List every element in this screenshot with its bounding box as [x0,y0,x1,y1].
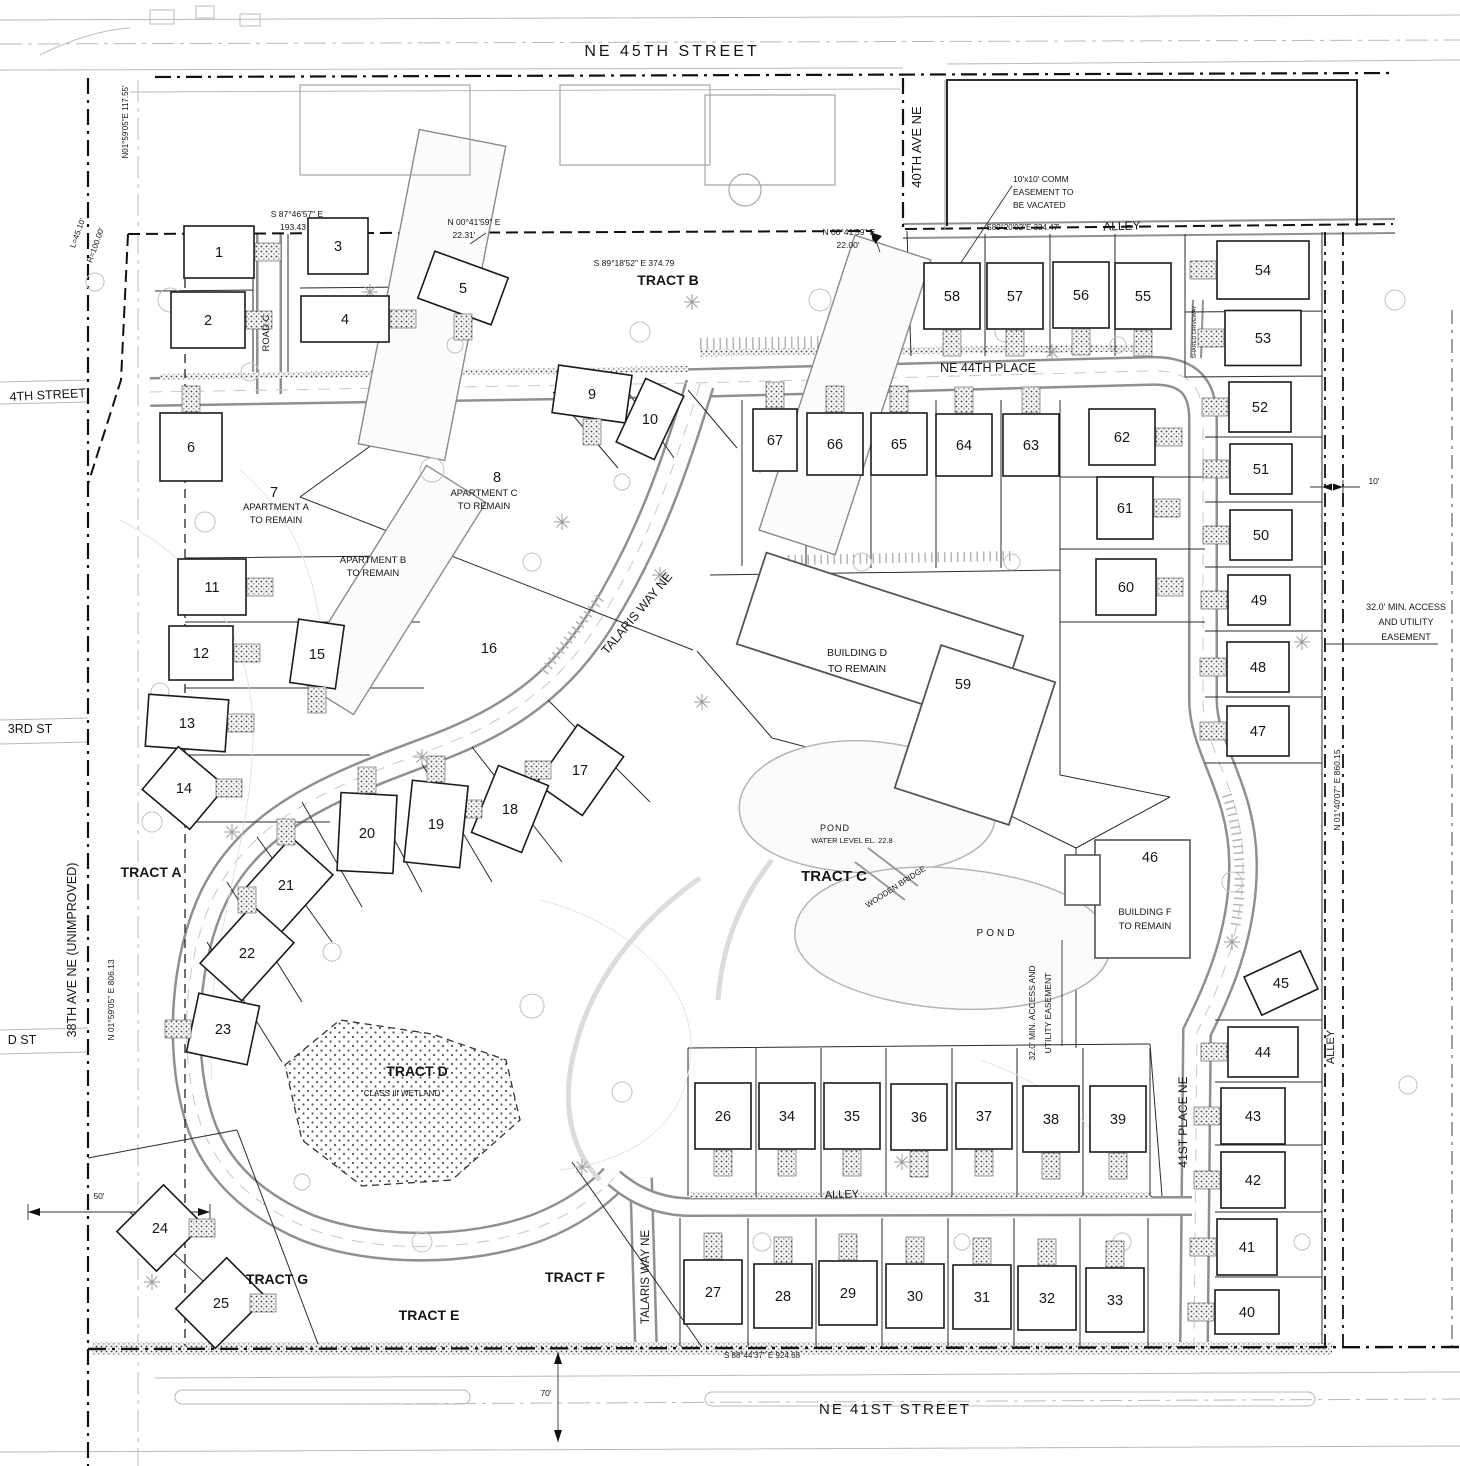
lot-12-driveway [234,644,260,662]
lot-12-number: 12 [193,646,209,662]
lot-40-driveway [1188,1303,1214,1321]
lot-26: 26 [695,1083,751,1176]
lot-61-number: 61 [1117,501,1133,517]
lot-35-number: 35 [844,1109,860,1125]
lot-13: 13 [145,694,254,751]
existing-pool [729,174,761,206]
lot-4-number: 4 [341,312,349,328]
lot-18-number: 18 [502,802,518,818]
lot-35-driveway [843,1150,861,1176]
lot-37: 37 [956,1083,1012,1176]
lot-39-number: 39 [1110,1112,1126,1128]
street-label: ALLEY [1325,1029,1337,1064]
lot-44: 44 [1201,1027,1298,1077]
lot-25-driveway [250,1294,276,1312]
lot-49-number: 49 [1251,593,1267,609]
lot-63-number: 63 [1023,438,1039,454]
lot-51-number: 51 [1253,462,1269,478]
lot-2-number: 2 [204,313,212,329]
street-label: D ST [8,1033,37,1047]
lot-60-driveway [1157,578,1183,596]
lot-30-number: 30 [907,1289,923,1305]
lot-9-number: 9 [588,387,596,403]
street-label: TALARIS WAY NE [640,1230,652,1324]
street-label: 40TH AVE NE [909,106,924,188]
median-island [175,1390,470,1404]
existing-block-border [947,80,1357,226]
lot-55-number: 55 [1135,289,1151,305]
street-label: 3RD ST [8,722,53,736]
lot-59: 59 [955,677,971,693]
lot-34: 34 [759,1083,815,1176]
tract-label: TRACT D [386,1063,447,1079]
lot-19-number: 19 [428,817,444,833]
lot-64-driveway [955,387,973,413]
lot-29: 29 [819,1234,877,1325]
dimension-label: AND UTILITY [1378,617,1433,627]
lot-11: 11 [178,559,273,615]
lot-5-driveway [454,314,472,340]
dimension-label: 10'x10' COMM [1013,174,1069,184]
lot-26-number: 26 [715,1109,731,1125]
dimension-label: 50' [93,1191,104,1201]
lot-22-driveway [238,887,256,913]
dimension-label: N01°59'05"E 117.55' [121,85,130,158]
lot-8-number: 8 [493,470,501,486]
lot-13-number: 13 [179,716,195,732]
lot-27-driveway [704,1233,722,1259]
street-label: ALLEY [825,1188,860,1201]
corner-curb-marks [40,6,260,55]
street-label: NE 44TH PLACE [940,361,1036,375]
lot-38-number: 38 [1043,1112,1059,1128]
building-label: TO REMAIN [458,501,511,512]
building-label: TO REMAIN [347,568,400,579]
lot-38: 38 [1023,1086,1079,1179]
dimension-label: UTILITY EASEMENT [1043,973,1053,1054]
lot-53-driveway [1198,329,1224,347]
lot-6-number: 6 [187,440,195,456]
lot-14-number: 14 [176,781,192,797]
lot-41-number: 41 [1239,1240,1255,1256]
lot-60: 60 [1096,559,1183,615]
dimension-label: 32.0' MIN. ACCESS [1366,602,1446,612]
site-plan-drawing: 1234567891011121314151617181920212223242… [0,0,1460,1466]
lot-23-driveway [165,1020,191,1038]
lot-66-number: 66 [827,437,843,453]
lot-46-number: 46 [1142,850,1158,866]
street-label: ROAD C [261,314,272,351]
lot-65-driveway [890,386,908,412]
lot-27: 27 [684,1233,742,1324]
lot-43-driveway [1194,1107,1220,1125]
lot-19-driveway [427,756,445,782]
building-label: APARTMENT A [243,502,310,513]
dimension-label: 10' [1368,476,1379,486]
tract-label: TRACT F [545,1269,605,1285]
tract-label: TRACT A [121,864,182,880]
lot-31-number: 31 [974,1290,990,1306]
tract-label: TRACT G [246,1271,308,1287]
lot-11-driveway [247,578,273,596]
lot-14: 14 [142,747,242,830]
lot-63-driveway [1022,387,1040,413]
lot-54-driveway [1190,261,1216,279]
dimension-label: SHARED DRIVEWAY [1192,305,1198,359]
lot-23-number: 23 [215,1022,231,1038]
lot-3-number: 3 [334,239,342,255]
lot-27-number: 27 [705,1285,721,1301]
lot-48-driveway [1200,658,1226,676]
lot-39-driveway [1109,1153,1127,1179]
lot-32: 32 [1018,1239,1076,1330]
building-label: TO REMAIN [828,663,886,675]
lot-41-driveway [1190,1238,1216,1256]
lot-52-number: 52 [1252,400,1268,416]
lot-67-number: 67 [767,433,783,449]
lot-62-driveway [1156,428,1182,446]
lot-36-driveway [910,1151,928,1177]
lot-5-number: 5 [459,281,467,297]
street-label: 38TH AVE NE (UNIMPROVED) [65,863,79,1038]
lot-24-number: 24 [152,1221,168,1237]
dimension-label: EASEMENT TO [1013,187,1074,197]
lot-8: 8 [493,470,501,486]
lot-16-number: 16 [481,641,497,657]
building-label: APARTMENT B [340,555,407,566]
lot-33-number: 33 [1107,1293,1123,1309]
lot-62: 62 [1089,409,1182,465]
lot-57-number: 57 [1007,289,1023,305]
lot-38-driveway [1042,1153,1060,1179]
lot-57-driveway [1006,330,1024,356]
building-label: TO REMAIN [250,515,303,526]
lot-33: 33 [1086,1241,1144,1332]
lot-21-number: 21 [278,878,294,894]
lot-36: 36 [891,1084,947,1177]
dimension-label: EASEMENT [1381,632,1431,642]
lot-25-number: 25 [213,1296,229,1312]
lot-48-number: 48 [1250,660,1266,676]
lot-64-number: 64 [956,438,972,454]
lot-52-driveway [1202,398,1228,416]
lot-42-driveway [1194,1171,1220,1189]
lot-34-number: 34 [779,1109,795,1125]
lot-60-number: 60 [1118,580,1134,596]
lot-9-driveway [583,419,601,445]
lot-61: 61 [1097,477,1180,539]
dimension-label: S89°20'02"E 334.47' [986,223,1060,232]
lot-34-driveway [778,1150,796,1176]
dimension-label: 22.00' [837,240,860,250]
lot-39: 39 [1090,1086,1146,1179]
lot-32-number: 32 [1039,1291,1055,1307]
lot-32-driveway [1038,1239,1056,1265]
lot-51-driveway [1203,460,1229,478]
building-label: APARTMENT C [450,488,517,499]
dimension-label: L=45.10' [68,217,87,249]
building-label: BUILDING F [1118,907,1172,918]
lot-53: 53 [1198,311,1301,366]
lot-28-driveway [774,1237,792,1263]
lot-56: 56 [1053,262,1109,355]
lot-65-number: 65 [891,437,907,453]
street-label: ALLEY [1103,218,1141,233]
lot-7-number: 7 [270,485,278,501]
site-plan-sheet: 1234567891011121314151617181920212223242… [0,0,1460,1466]
lot-12: 12 [169,626,260,680]
lot-56-driveway [1072,329,1090,355]
lot-1-driveway [255,243,281,261]
lot-54-number: 54 [1255,263,1271,279]
lot-44-number: 44 [1255,1045,1271,1061]
lot-50-number: 50 [1253,528,1269,544]
existing-north-buildings [300,85,835,185]
lot-47-driveway [1200,722,1226,740]
street-label: NE 45TH STREET [584,43,759,60]
building-label: BUILDING D [827,647,888,659]
lot-3: 3 [308,218,368,274]
lot-10-number: 10 [642,412,658,428]
lot-1-number: 1 [215,245,223,261]
lot-17-driveway [525,761,551,779]
lot-55-driveway [1134,330,1152,356]
wetland-tract-d [285,1020,520,1186]
dimension-label: N 01°40'07" E 860.15 [1332,749,1342,831]
lot-35: 35 [824,1083,880,1176]
lot-20-number: 20 [359,826,375,842]
row-dashdot-top [155,73,1393,77]
lot-24-driveway [189,1219,215,1237]
lot-26-driveway [714,1150,732,1176]
lot-15-number: 15 [309,647,325,663]
tract-label: TRACT C [801,868,867,885]
dimension-label: 70' [540,1388,551,1398]
street-label: 4TH STREET [9,386,86,404]
dimension-label: BE VACATED [1013,200,1066,210]
lot-43-number: 43 [1245,1109,1261,1125]
building-f-wing [1065,855,1100,905]
lot-37-driveway [975,1150,993,1176]
lot-36-number: 36 [911,1110,927,1126]
lot-50-driveway [1203,526,1229,544]
lot-22-number: 22 [239,946,255,962]
dimension-label: S 88°44'37" E 924.68 [724,1351,801,1360]
lot-55: 55 [1115,263,1171,356]
lot-6-driveway [182,386,200,412]
lot-13-driveway [228,714,254,732]
lot-20-driveway [358,767,376,793]
lot-63: 63 [1003,387,1059,476]
lot-29-number: 29 [840,1286,856,1302]
median-island [705,1392,1315,1406]
lot-57: 57 [987,263,1043,356]
lot-64: 64 [936,387,992,476]
lot-30: 30 [886,1237,944,1328]
lot-58-driveway [943,330,961,356]
lot-40-number: 40 [1239,1305,1255,1321]
lot-7: 7 [270,485,278,501]
lot-53-number: 53 [1255,331,1271,347]
lot-46: 46 [1142,850,1158,866]
dimension-label: S 89°18'52" E 374.79 [594,258,675,268]
dimension-label: 32.0' MIN. ACCESS AND [1027,965,1037,1060]
lot-61-driveway [1154,499,1180,517]
lot-30-driveway [906,1237,924,1263]
dimension-label: 22.31' [453,230,476,240]
street-label: 41ST PLACE NE [1176,1076,1190,1167]
lot-59-number: 59 [955,677,971,693]
lot-56-number: 56 [1073,288,1089,304]
lot-28-number: 28 [775,1289,791,1305]
lot-19: 19 [404,756,468,868]
lot-62-number: 62 [1114,430,1130,446]
parking-row [788,556,1012,560]
lot-45-number: 45 [1273,976,1289,992]
street-label: NE 41ST STREET [819,1401,971,1418]
tract-label: TRACT E [399,1307,460,1323]
building-label: TO REMAIN [1119,921,1172,932]
lot-16: 16 [481,641,497,657]
water-label: POND [820,823,850,833]
lot-31-driveway [973,1238,991,1264]
lot-33-driveway [1106,1241,1124,1267]
lot-4-driveway [390,310,416,328]
lot-54: 54 [1190,241,1309,299]
lot-44-driveway [1201,1043,1227,1061]
lot-67-driveway [766,382,784,408]
dimension-label: N 00°41'59" E [823,227,876,237]
lot-37-number: 37 [976,1109,992,1125]
lot-31: 31 [953,1238,1011,1329]
lot-58-number: 58 [944,289,960,305]
tract-label: TRACT B [637,272,698,288]
water-label: WATER LEVEL EL. 22.8 [811,836,892,845]
lot-29-driveway [839,1234,857,1260]
dimension-label: N 00°41'59" E [448,217,501,227]
dimension-label: CLASS III WETLAND [364,1089,441,1098]
lot-14-driveway [216,779,242,797]
lot-17-number: 17 [572,763,588,779]
lot-47-number: 47 [1250,724,1266,740]
lot-42-number: 42 [1245,1173,1261,1189]
pond-south [795,867,1110,1009]
dimension-label: S 87°46'57" E [271,209,324,219]
dimension-label: 193.43 [280,222,306,232]
water-label: POND [977,928,1018,939]
lot-49-driveway [1201,591,1227,609]
lot-11-number: 11 [204,580,219,596]
lot-66-driveway [826,386,844,412]
lot-58: 58 [924,263,980,356]
lot-24: 24 [117,1185,215,1271]
lot-21-driveway [277,819,295,845]
dimension-label: N 01°59'05" E 806.13 [106,959,116,1041]
lot-45: 45 [1244,951,1318,1015]
lot-15-driveway [308,687,326,713]
